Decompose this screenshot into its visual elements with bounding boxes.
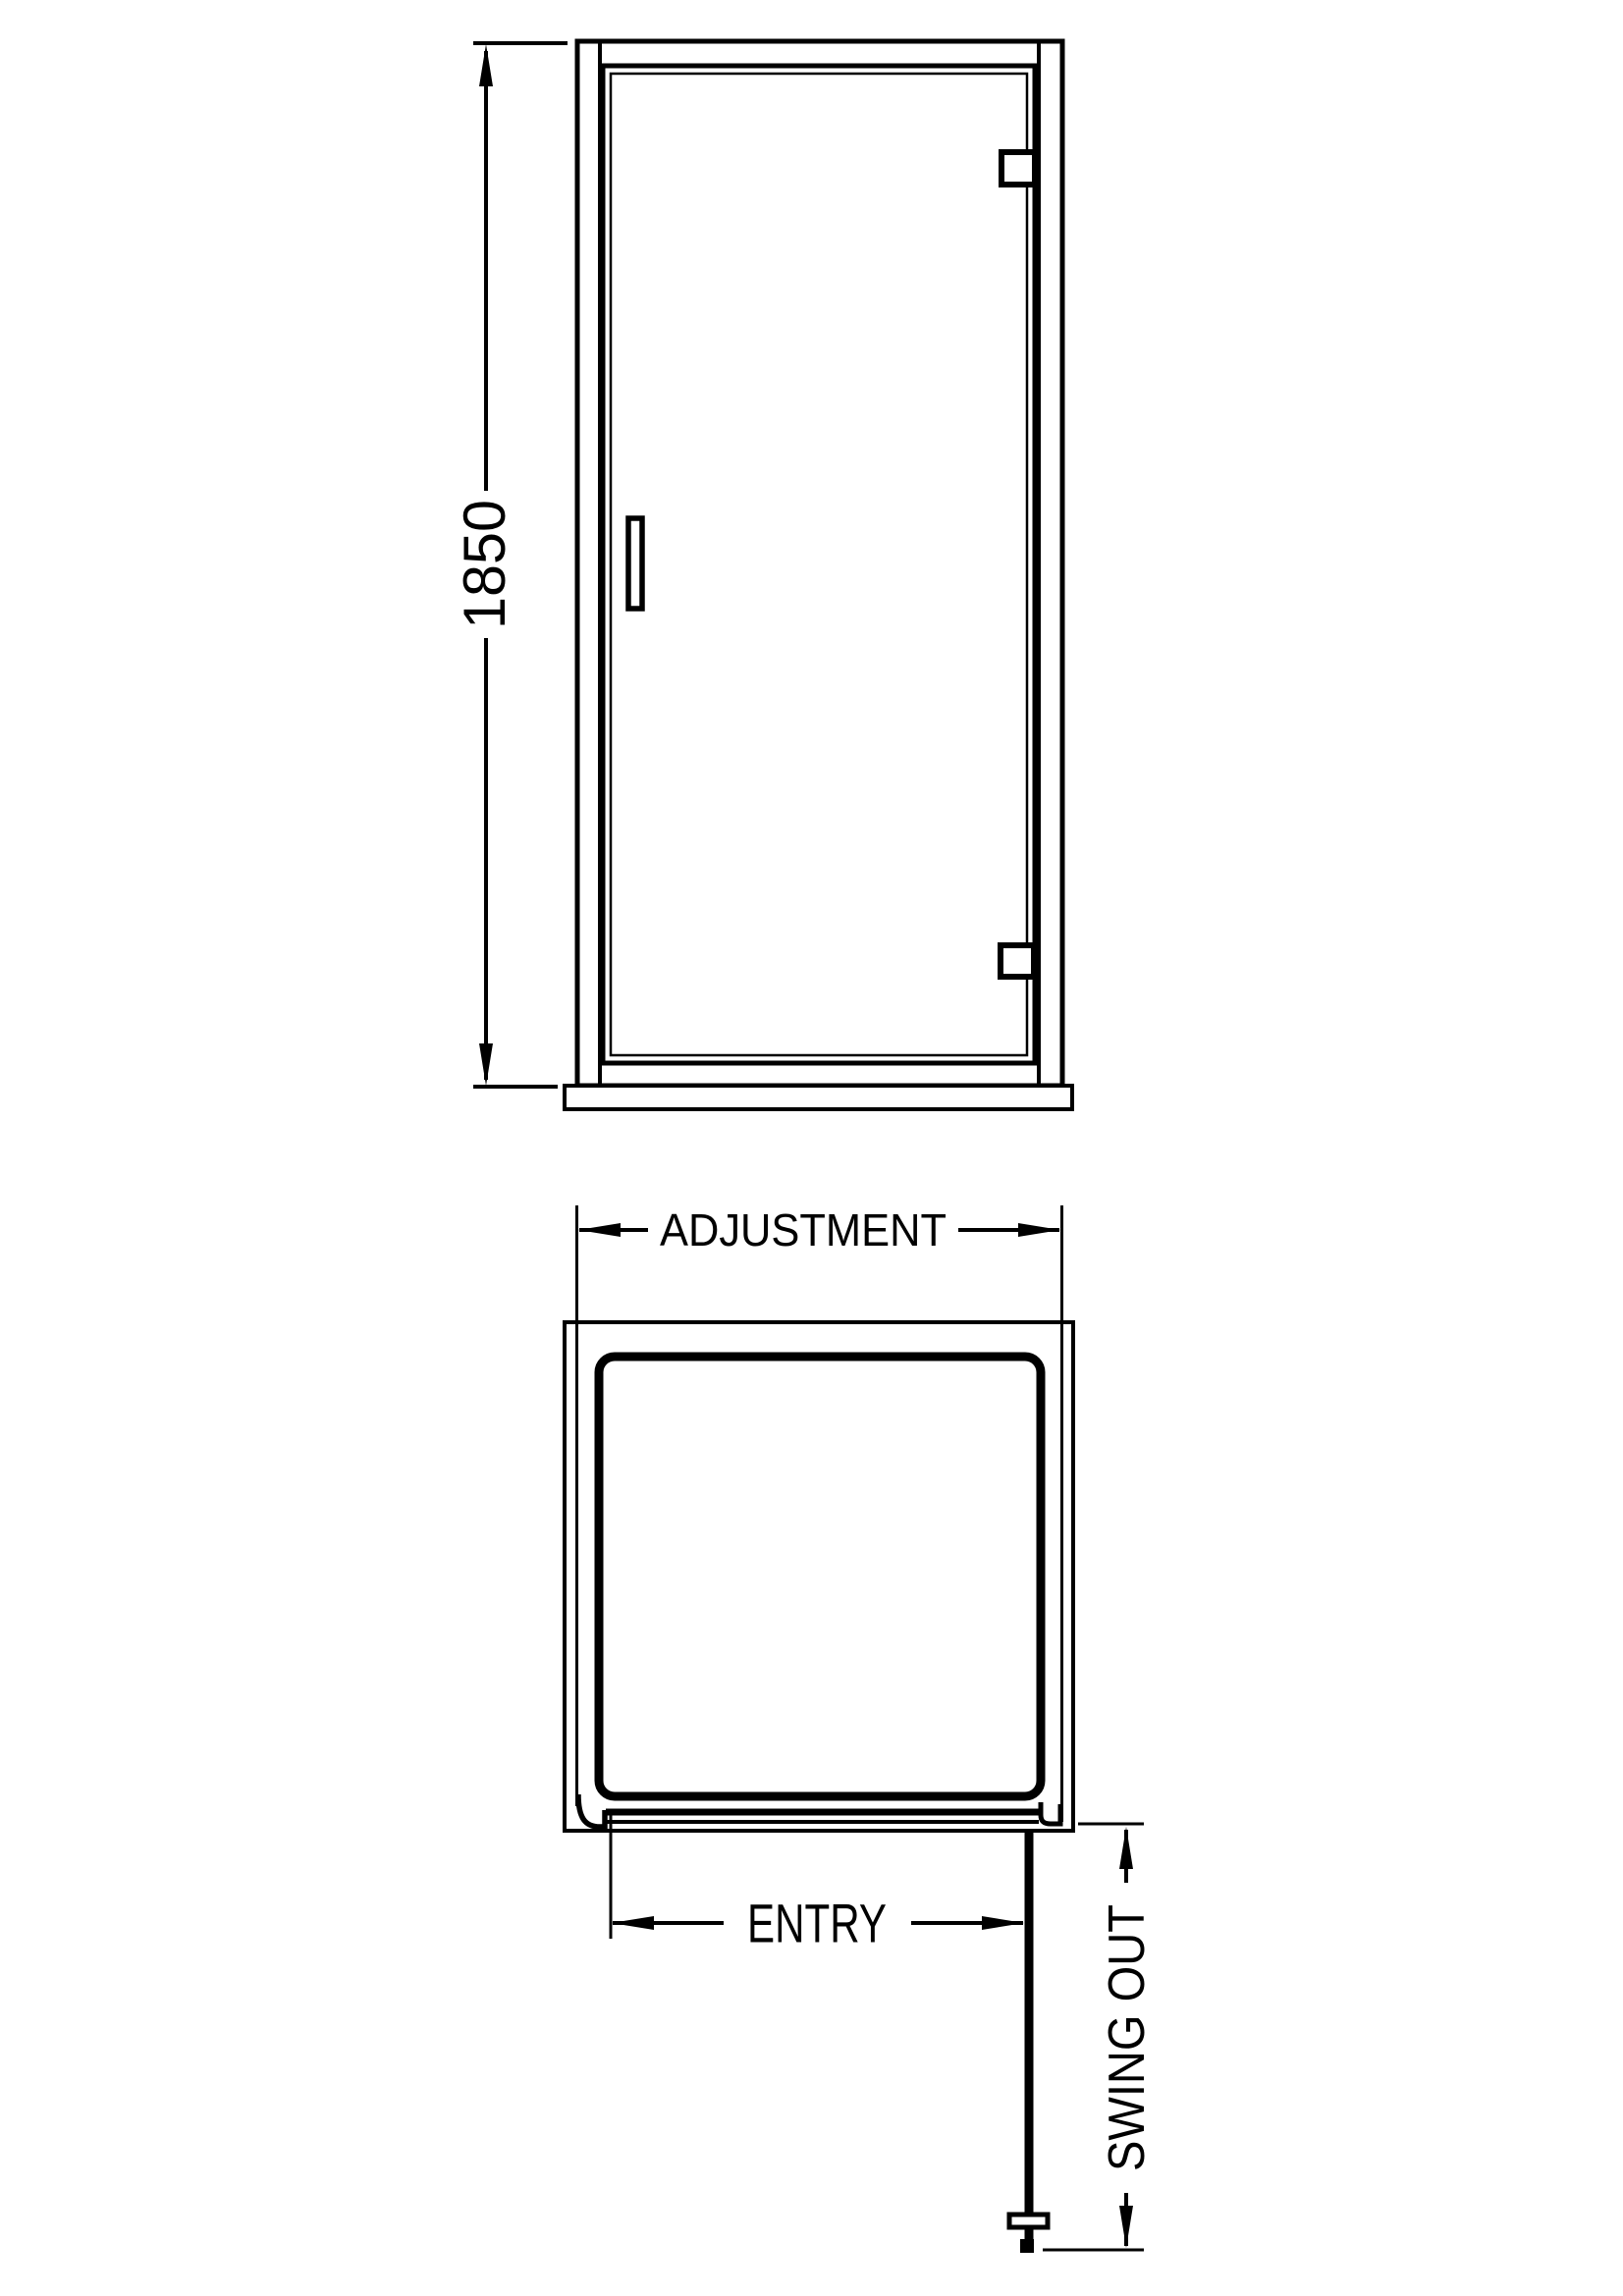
shower-tray: [565, 1086, 1072, 1109]
height-dim-arrow-down-icon: [479, 1043, 493, 1086]
shower-door-technical-drawing: 1850: [0, 0, 1623, 2296]
door-outer-edge: [603, 66, 1035, 1063]
door-inner-edge: [611, 74, 1027, 1055]
plan-view: ADJUSTMENT: [565, 1204, 1156, 2253]
front-elevation-view: 1850: [452, 41, 1072, 1109]
enclosure-plan: [565, 1205, 1073, 1831]
entry-dim-arrow-right-icon: [982, 1916, 1024, 1930]
swing-out-dimension: SWING OUT: [1043, 1824, 1156, 2250]
hinge-top: [1001, 152, 1035, 185]
adjustment-dim-arrow-left-icon: [578, 1223, 621, 1237]
swing-dim-arrow-up-icon: [1119, 1827, 1133, 1869]
frame-outer-outline: [577, 41, 1062, 1086]
drawing-svg: 1850: [0, 0, 1623, 2296]
open-door-handle: [1009, 2215, 1048, 2227]
height-dim-label: 1850: [452, 500, 517, 629]
plan-left-seal-detail: [578, 1794, 605, 1827]
door-handle: [628, 518, 642, 609]
height-dimension: 1850: [452, 43, 568, 1087]
door-panel: [603, 66, 1035, 1063]
open-door-foot-detail: [1020, 2239, 1034, 2253]
height-dim-arrow-up-icon: [479, 44, 493, 86]
adjustment-dimension: ADJUSTMENT: [578, 1204, 1060, 1255]
adjustment-dim-label: ADJUSTMENT: [660, 1204, 947, 1255]
swing-dim-label: SWING OUT: [1099, 1904, 1156, 2171]
hinge-bottom: [1001, 945, 1034, 977]
entry-dim-label: ENTRY: [747, 1893, 887, 1954]
adjustment-dim-arrow-right-icon: [1018, 1223, 1060, 1237]
door-frame: [577, 41, 1062, 1086]
plan-pivot-detail: [1041, 1802, 1060, 1824]
plan-glass-inner-outline: [599, 1357, 1041, 1796]
entry-dim-arrow-left-icon: [612, 1916, 654, 1930]
open-door-plan: [1009, 1829, 1048, 2253]
swing-dim-arrow-down-icon: [1119, 2206, 1133, 2248]
plan-outer-outline: [565, 1322, 1073, 1831]
